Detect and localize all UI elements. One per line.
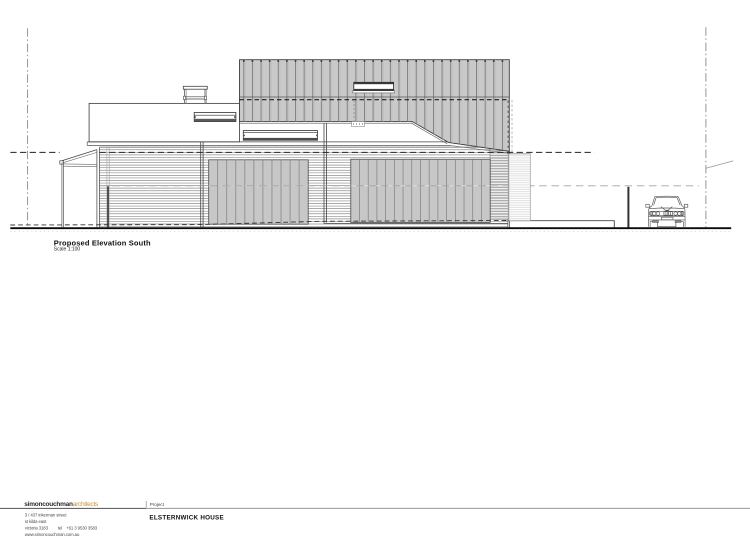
svg-text:victoria 3183tel+61 3 9530 358: victoria 3183tel+61 3 9530 3583 bbox=[25, 525, 98, 530]
svg-text:Scale 1:100: Scale 1:100 bbox=[54, 247, 81, 253]
svg-text:st kilda east: st kilda east bbox=[25, 519, 47, 524]
svg-text:ELSTERNWICK HOUSE: ELSTERNWICK HOUSE bbox=[149, 514, 224, 521]
svg-text:3 / 437 inkerman street: 3 / 437 inkerman street bbox=[25, 512, 68, 517]
svg-text:www.simoncouchman.com.au: www.simoncouchman.com.au bbox=[25, 532, 80, 537]
svg-text:simoncouchmanarchitects: simoncouchmanarchitects bbox=[24, 501, 99, 508]
svg-text:Project: Project bbox=[150, 502, 165, 507]
